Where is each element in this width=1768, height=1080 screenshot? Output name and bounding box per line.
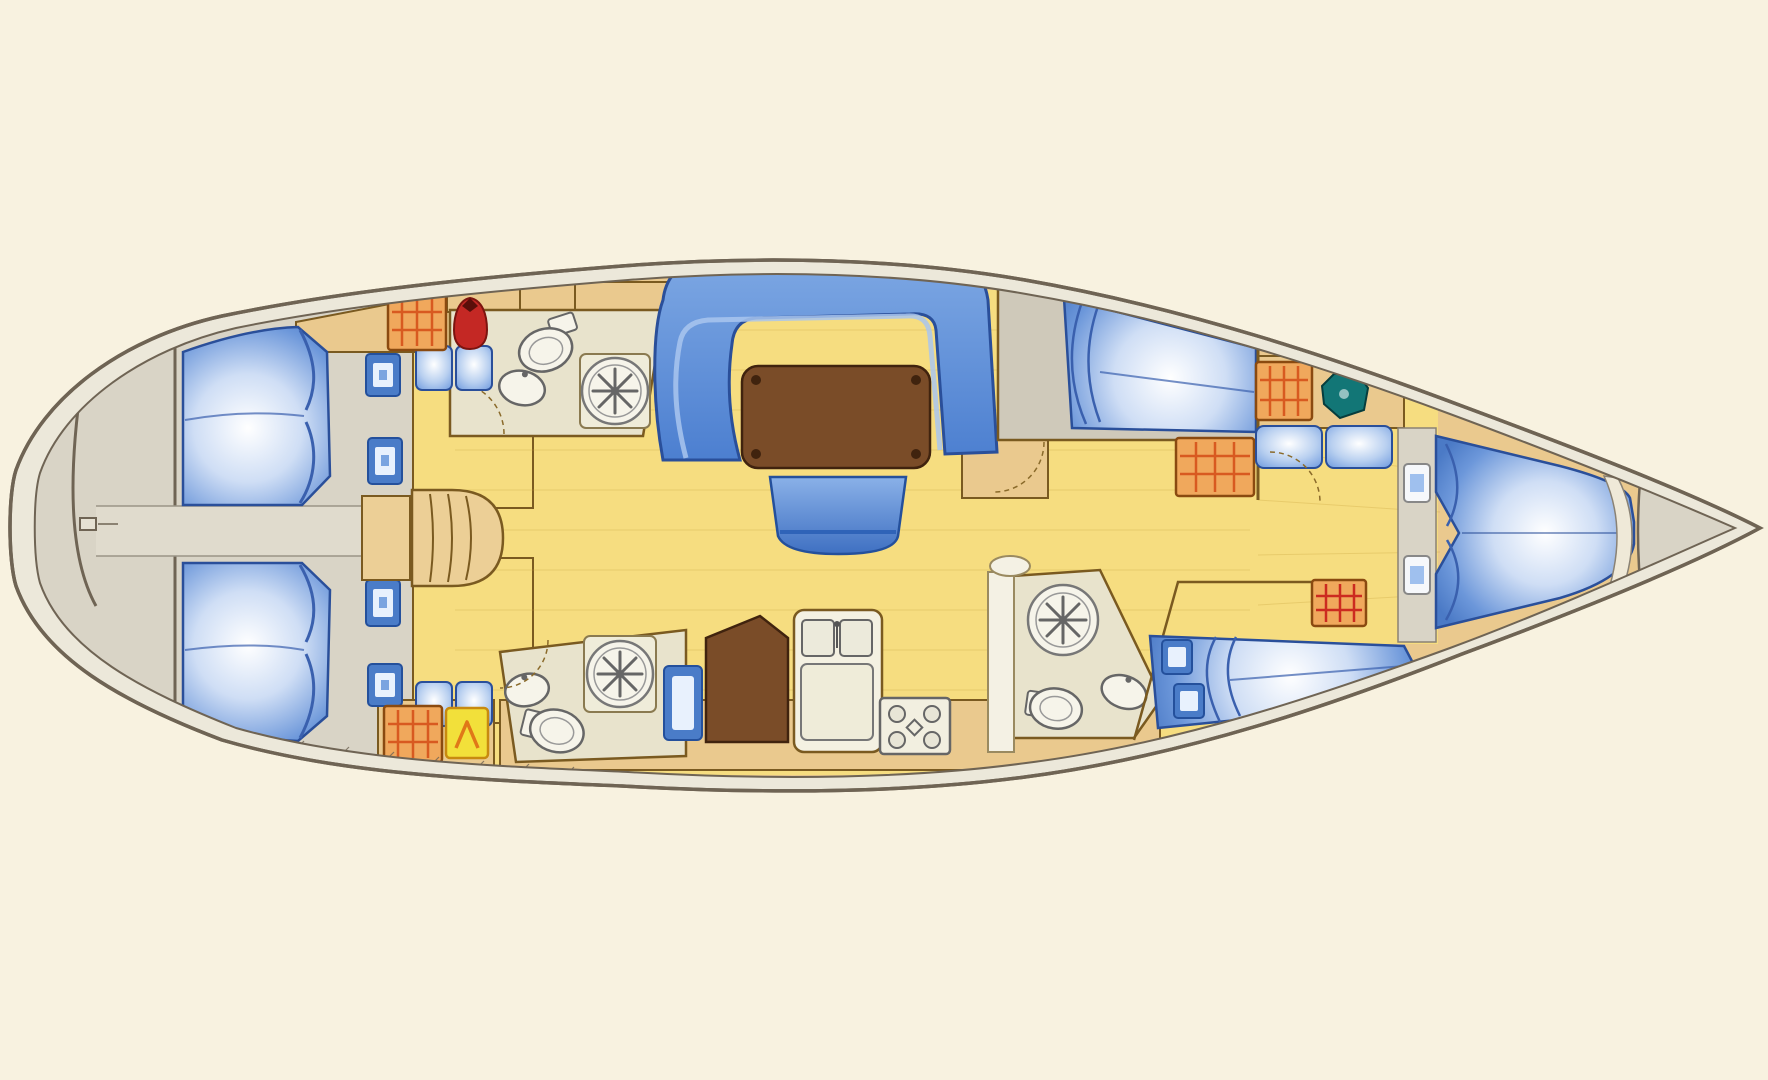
hull-window-icon — [1404, 556, 1430, 594]
hull-window-icon — [368, 438, 402, 484]
hull-window-icon — [366, 354, 400, 396]
hull-window-icon — [1404, 464, 1430, 502]
wardrobe-icon — [1256, 362, 1312, 420]
head-aft-starboard — [500, 630, 686, 762]
stove-icon — [880, 698, 950, 754]
seat-cushion — [456, 346, 492, 390]
shower-icon — [1028, 585, 1098, 655]
berth-head-shelf — [1398, 428, 1436, 642]
floorplan-image — [0, 0, 1768, 1080]
stool — [770, 477, 906, 554]
shower-icon — [587, 641, 653, 707]
worktop — [801, 664, 873, 740]
yacht-floorplan-svg — [0, 0, 1768, 1080]
hull-window-icon — [366, 580, 400, 626]
companionway — [362, 490, 503, 586]
hull-window-icon — [1174, 684, 1204, 718]
gear-locker-icon — [446, 708, 488, 758]
steps — [412, 490, 503, 586]
hull-window-icon — [368, 664, 402, 706]
jacket-icon — [454, 298, 487, 349]
seat-locker — [1326, 426, 1392, 468]
seat-locker — [1256, 426, 1322, 468]
hull-window-icon — [1162, 640, 1192, 674]
steps-landing — [362, 496, 410, 580]
wardrobe-icon — [1312, 580, 1366, 626]
access-hatch-icon — [80, 518, 96, 530]
dining-table — [742, 366, 930, 468]
icebox — [706, 616, 788, 742]
double-sink-icon — [794, 610, 882, 752]
wardrobe-icon — [1176, 438, 1254, 496]
seat-cushion — [416, 346, 452, 390]
shower-icon — [582, 358, 648, 424]
fridge-front-icon — [664, 666, 702, 740]
